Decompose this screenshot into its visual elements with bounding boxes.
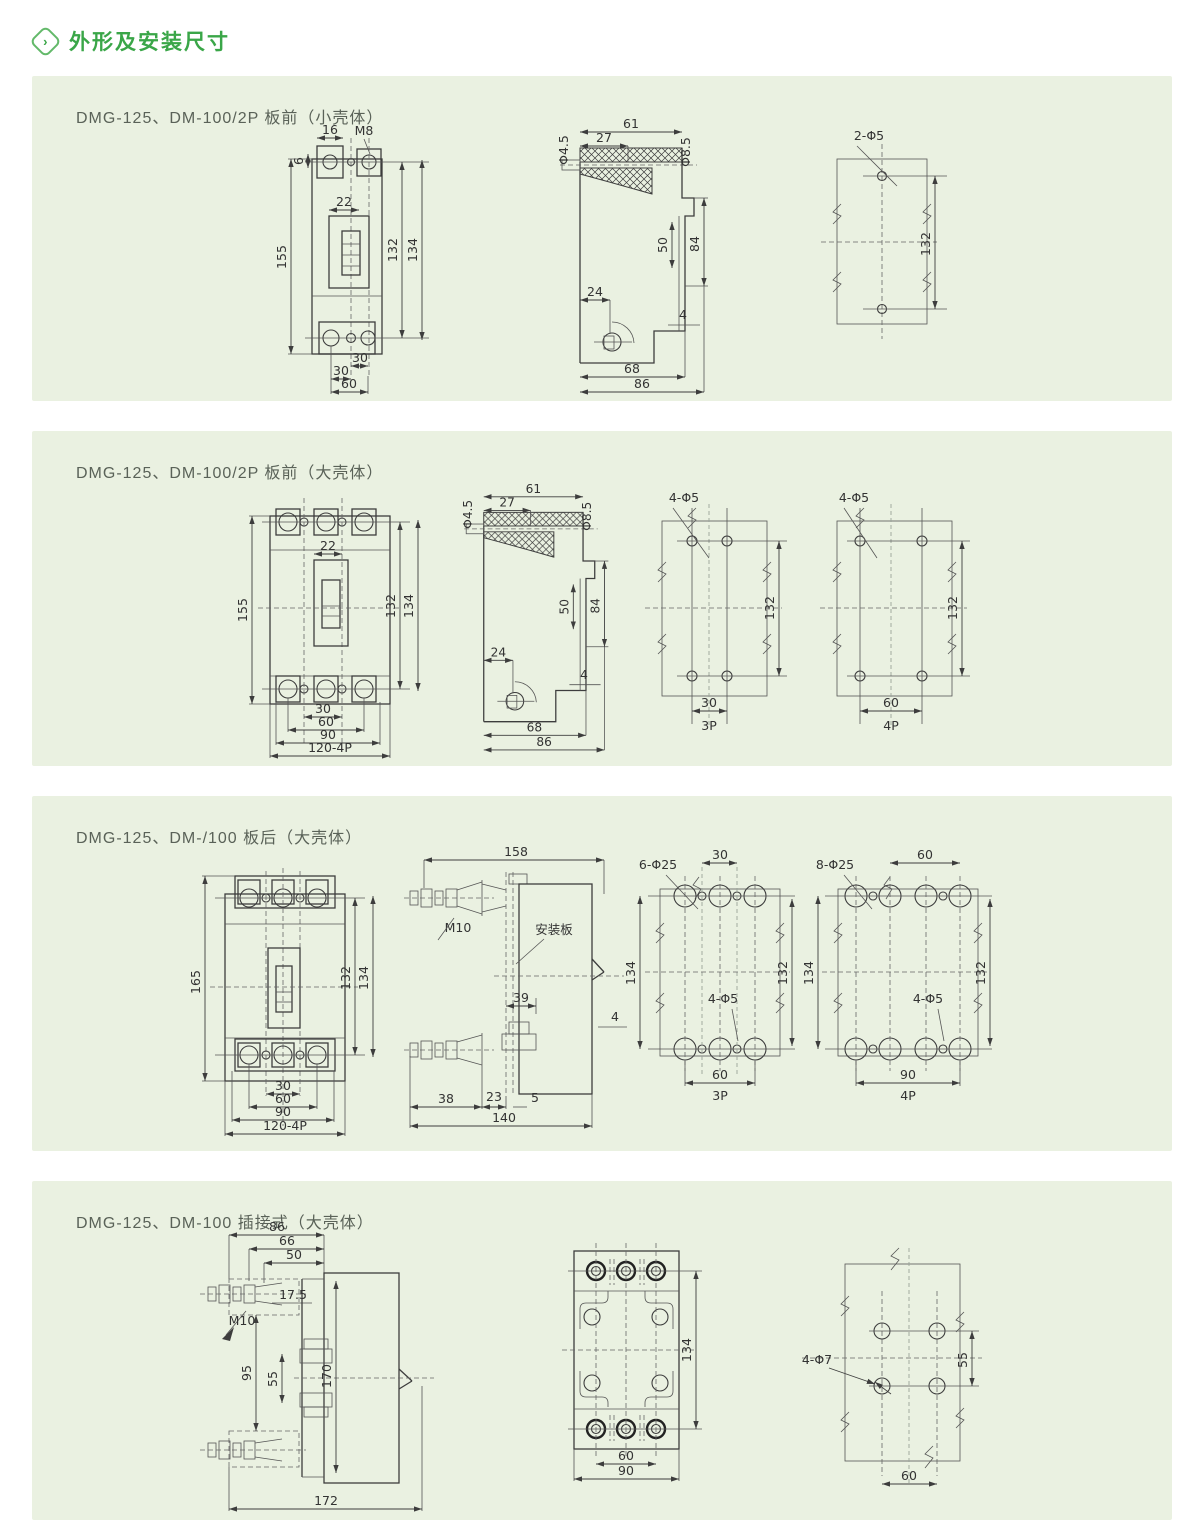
dim-55: 55 [955, 1352, 970, 1368]
panel-front-mount-small-case: DMG-125、DM-100/2P 板前（小壳体） [32, 76, 1172, 401]
dim-22: 22 [320, 538, 336, 553]
dim-50: 50 [286, 1247, 302, 1262]
dim-4: 4 [679, 307, 687, 322]
label-mounting-plate: 安装板 [535, 922, 573, 937]
drawing-dimensions: 6-Φ25 30 134 132 4-Φ5 60 3P [623, 847, 792, 1103]
drawing-drilling-plan-2p: 2-Φ5 132 [807, 124, 972, 369]
dim-4phi5: 4-Φ5 [708, 991, 738, 1006]
dim-60: 60 [618, 1448, 634, 1463]
drawing-dimensions: 4-Φ5 132 30 3P [669, 490, 779, 733]
dim-6: 6 [291, 157, 306, 165]
drawing-geometry [822, 875, 992, 1086]
dim-pole-4p: 4P [883, 718, 899, 733]
drawing-geometry [645, 867, 795, 1086]
dim-134: 134 [679, 1338, 694, 1362]
dim-27: 27 [596, 130, 612, 145]
dim-60: 60 [883, 695, 899, 710]
dim-132: 132 [918, 232, 933, 256]
dim-132: 132 [338, 966, 353, 990]
dim-39: 39 [513, 990, 529, 1005]
dim-24: 24 [491, 645, 507, 659]
dim-4phi5: 4-Φ5 [839, 490, 869, 505]
drawing-side-view-small: 61 27 Φ4.5 Φ8.5 50 84 24 4 68 86 [532, 116, 722, 396]
drawing-plugin-base: 134 60 90 [544, 1229, 724, 1489]
drawing-geometry [560, 146, 708, 392]
dim-155: 155 [274, 245, 289, 269]
dim-120-4p: 120-4P [308, 740, 352, 755]
dim-140: 140 [492, 1110, 516, 1125]
drawing-front-view-rear: 165 132 134 30 60 90 120-4P [180, 856, 390, 1141]
drawing-geometry [200, 1235, 434, 1511]
drawing-front-view-large: 22 155 132 134 30 60 90 120-4P [232, 486, 432, 761]
dim-155: 155 [235, 598, 250, 622]
dim-120-4p: 120-4P [263, 1118, 307, 1133]
dim-132: 132 [775, 961, 790, 985]
dim-68: 68 [527, 720, 542, 734]
dim-132: 132 [945, 596, 960, 620]
dim-4: 4 [611, 1009, 619, 1024]
dim-8phi25: 8-Φ25 [816, 857, 854, 872]
dim-90: 90 [900, 1067, 916, 1082]
dim-84: 84 [687, 236, 702, 252]
section-header: › 外形及安装尺寸 [34, 26, 1204, 56]
dim-2phi5: 2-Φ5 [854, 128, 884, 143]
drawing-dimensions: 86 66 50 17.5 M10 95 55 170 172 [229, 1219, 422, 1509]
dim-172: 172 [314, 1493, 338, 1508]
dim-22: 22 [336, 194, 352, 209]
dim-60: 60 [341, 376, 357, 391]
drawing-dimensions: 158 M10 安装板 39 4 38 23 5 140 [410, 844, 619, 1126]
dim-m8: M8 [355, 123, 374, 138]
dim-4phi5: 4-Φ5 [913, 991, 943, 1006]
drawing-rear-drilling-3p: 6-Φ25 30 134 132 4-Φ5 60 3P [620, 851, 810, 1116]
dim-61: 61 [526, 482, 541, 496]
dim-27: 27 [499, 496, 514, 510]
dim-pole-4p: 4P [900, 1088, 916, 1103]
dim-50: 50 [557, 599, 571, 614]
page-title: 外形及安装尺寸 [69, 26, 230, 56]
dim-4phi5: 4-Φ5 [669, 490, 699, 505]
drawing-drilling-plan-3p: 4-Φ5 132 30 3P [627, 486, 802, 746]
dim-phi45: Φ4.5 [556, 135, 571, 165]
drawing-plugin-side-view: 86 66 50 17.5 M10 95 55 170 172 [194, 1221, 439, 1521]
dim-30a: 30 [352, 350, 368, 365]
dim-38: 38 [438, 1091, 454, 1106]
drawing-rear-drilling-4p: 8-Φ25 60 134 132 4-Φ5 90 4P [800, 851, 1005, 1116]
drawing-drilling-plan-4p: 4-Φ5 132 60 4P [802, 486, 982, 746]
dim-61: 61 [623, 116, 639, 131]
dim-60: 60 [901, 1468, 917, 1483]
dim-60: 60 [917, 847, 933, 862]
dim-134: 134 [356, 966, 371, 990]
dim-16: 16 [322, 122, 338, 137]
dim-23: 23 [486, 1089, 502, 1104]
panel-rear-mount-large-case: DMG-125、DM-/100 板后（大壳体） [32, 796, 1172, 1151]
dim-134: 134 [801, 961, 816, 985]
dim-30: 30 [712, 847, 728, 862]
dim-84: 84 [589, 598, 603, 614]
dim-134: 134 [623, 961, 638, 985]
dim-pole-3p: 3P [712, 1088, 728, 1103]
dim-m10: M10 [445, 920, 472, 935]
dim-phi45: Φ4.5 [461, 500, 475, 529]
panel-front-mount-large-case: DMG-125、DM-100/2P 板前（大壳体） [32, 431, 1172, 766]
dim-50: 50 [655, 237, 670, 253]
drawing-geometry [464, 510, 608, 750]
dim-68: 68 [624, 361, 640, 376]
panel-title: DMG-125、DM-/100 板后（大壳体） [76, 824, 362, 848]
dim-phi85: Φ8.5 [580, 502, 594, 531]
dim-60: 60 [712, 1067, 728, 1082]
drawing-front-view-small: 16 M8 6 22 155 132 134 30 30 60 [267, 124, 447, 399]
panel-title: DMG-125、DM-100/2P 板前（大壳体） [76, 459, 383, 483]
dim-95: 95 [239, 1365, 254, 1381]
drawing-side-view-rear: 158 M10 安装板 39 4 38 23 5 140 [394, 844, 629, 1139]
dim-17-5: 17.5 [279, 1287, 307, 1302]
dim-134: 134 [401, 594, 416, 618]
dim-170: 170 [319, 1364, 334, 1388]
dim-4phi7: 4-Φ7 [802, 1352, 832, 1367]
dim-86: 86 [634, 376, 650, 391]
chevron-right-icon: › [29, 25, 62, 58]
dim-132: 132 [385, 238, 400, 262]
panel-plug-in-large-case: DMG-125、DM-100 插接式（大壳体） [32, 1181, 1172, 1520]
dim-165: 165 [188, 970, 203, 994]
dim-6phi25: 6-Φ25 [639, 857, 677, 872]
dim-66: 66 [279, 1233, 295, 1248]
dim-m10: M10 [229, 1313, 256, 1328]
dim-86: 86 [536, 735, 551, 749]
dim-pole-3p: 3P [701, 718, 717, 733]
drawing-plugin-drilling: 4-Φ7 55 60 [787, 1236, 997, 1506]
drawing-side-view-large: 61 27 Φ4.5 Φ8.5 50 84 24 4 68 86 [437, 481, 622, 754]
dim-134: 134 [405, 238, 420, 262]
dim-158: 158 [504, 844, 528, 859]
dim-phi85: Φ8.5 [678, 137, 693, 167]
dim-132: 132 [383, 594, 398, 618]
dim-55: 55 [265, 1371, 280, 1387]
dim-30: 30 [701, 695, 717, 710]
dim-132: 132 [973, 961, 988, 985]
dim-4: 4 [580, 668, 588, 682]
dim-90: 90 [275, 1104, 291, 1119]
dim-86: 86 [269, 1219, 285, 1234]
dim-90: 90 [618, 1463, 634, 1478]
dim-132: 132 [762, 596, 777, 620]
catalog-page: › 外形及安装尺寸 DMG-125、DM-100/2P 板前（小壳体） [0, 0, 1204, 1529]
dim-5: 5 [531, 1090, 539, 1105]
dim-24: 24 [587, 284, 603, 299]
